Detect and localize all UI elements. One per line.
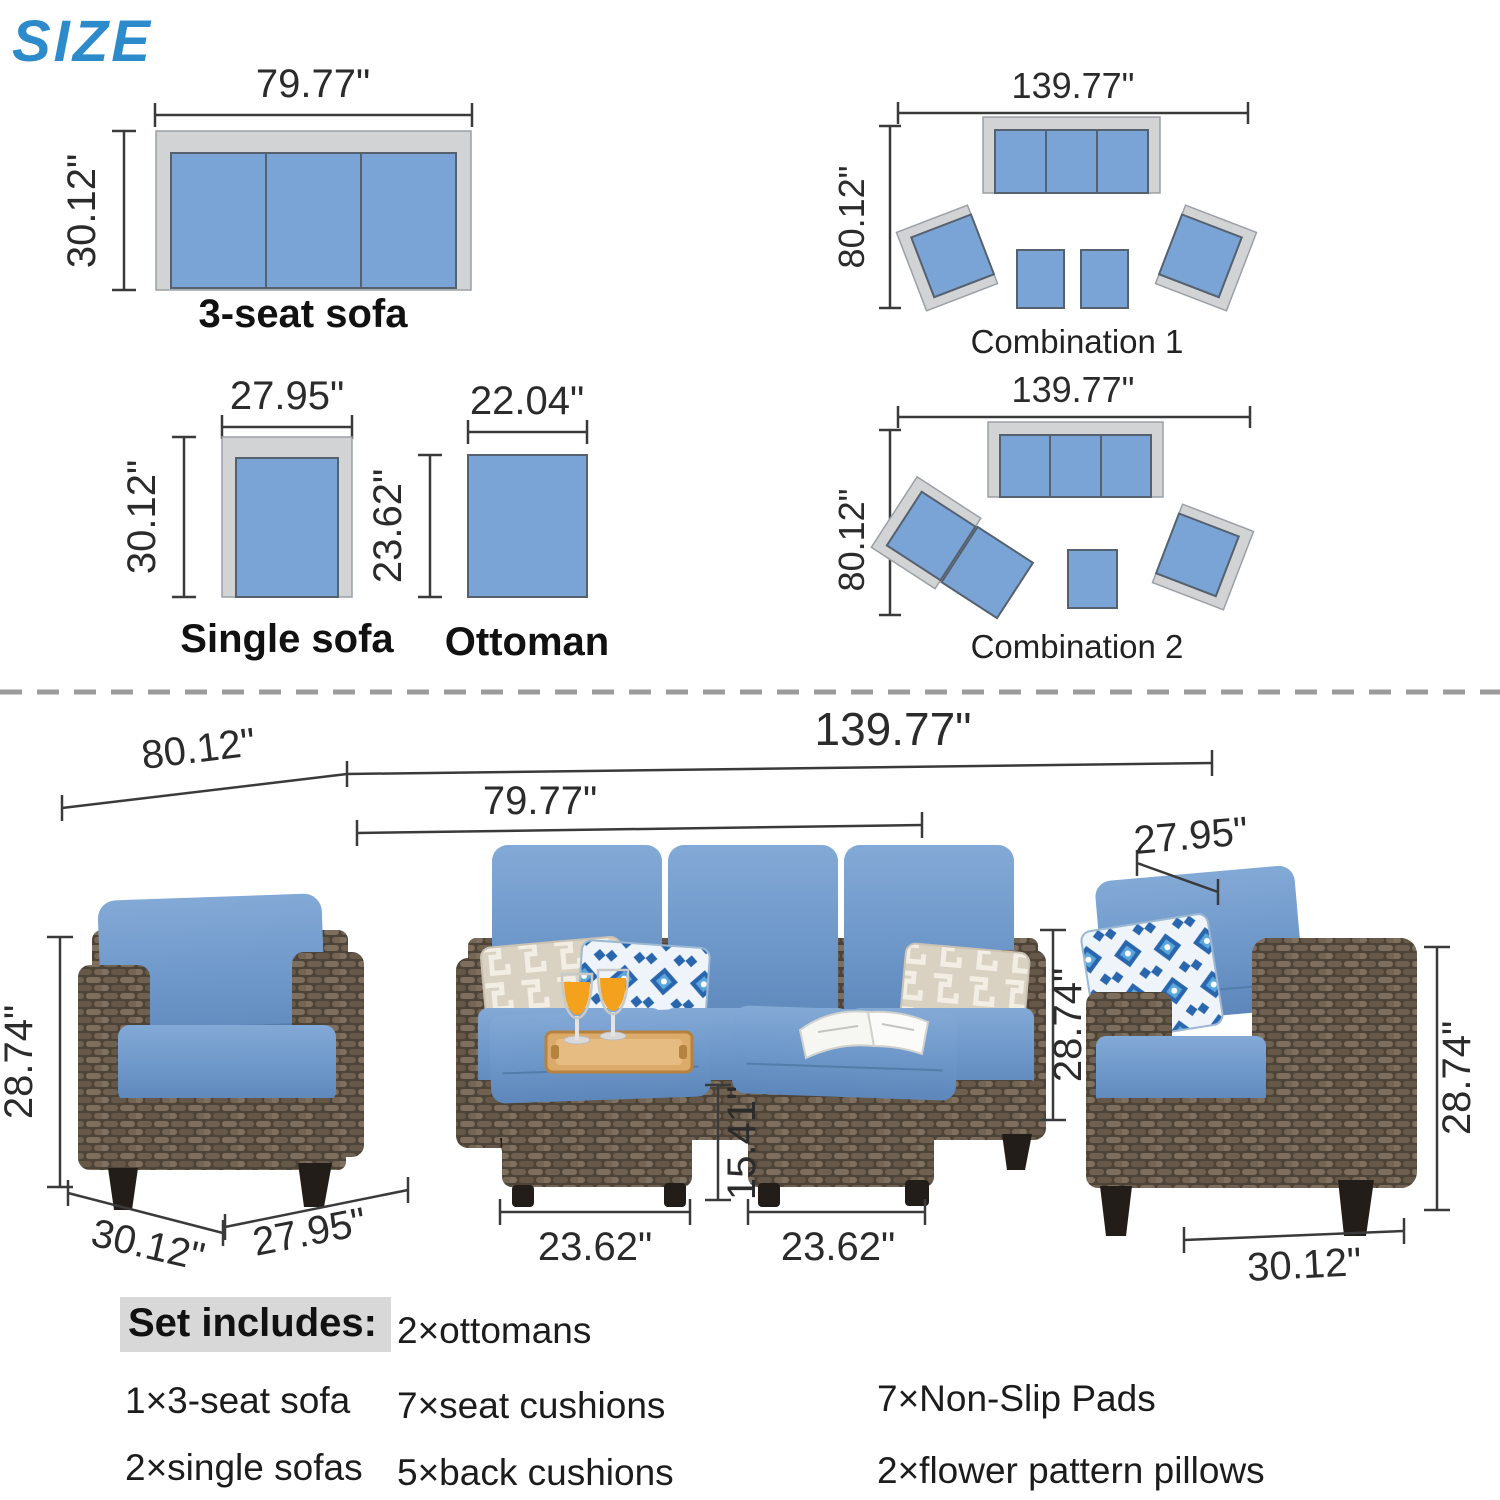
sofa3-height-line <box>112 131 136 290</box>
set-includes-item-flower-pillows: 2×flower pattern pillows <box>877 1450 1265 1492</box>
combo2-width-label: 139.77" <box>1012 369 1135 410</box>
sofa3-height-label: 30.12" <box>60 154 104 268</box>
sofa3-caption: 3-seat sofa <box>199 292 409 336</box>
combo1-height-label: 80.12" <box>831 166 872 269</box>
dim-sofa-width: 79.77" <box>483 779 597 823</box>
ottoman-height-label: 23.62" <box>366 469 410 583</box>
single-height-label: 30.12" <box>120 460 164 574</box>
dim-ottoman1-width: 23.62" <box>538 1225 652 1269</box>
sofa3-cushions <box>171 153 456 288</box>
combo1-width-label: 139.77" <box>1012 65 1135 106</box>
ottoman-height-line <box>418 455 442 597</box>
sofa3-width-label: 79.77" <box>256 62 370 106</box>
set-includes-item-3-seat-sofa: 1×3-seat sofa <box>125 1380 350 1422</box>
ottoman-cushion <box>468 455 587 597</box>
set-includes-item-non-slip-pads: 7×Non-Slip Pads <box>877 1378 1156 1420</box>
single-cushion <box>236 458 338 597</box>
ottoman-caption: Ottoman <box>445 620 609 664</box>
diagram-3-seat-sofa: 79.77" 30.12" 3-seat sofa <box>60 62 472 336</box>
combo2-height-label: 80.12" <box>831 489 872 592</box>
combo2-chaise <box>871 477 1038 626</box>
dim-right-chair-height: 28.74" <box>1435 1021 1479 1135</box>
dim-left-chair-width: 27.95" <box>249 1200 370 1265</box>
dim-ottoman2-width: 23.62" <box>781 1225 895 1269</box>
single-height-line <box>172 437 196 597</box>
furniture-size-infographic: SIZE <box>0 0 1500 1500</box>
single-caption: Single sofa <box>180 617 394 661</box>
set-includes-item-back-cushions: 5×back cushions <box>397 1452 674 1494</box>
photo-right-chair <box>1080 865 1417 1236</box>
dim-ottoman-height: 15.41" <box>720 1086 764 1200</box>
dim-left-chair-depth: 30.12" <box>87 1211 208 1280</box>
photo-right-ottoman <box>732 1005 959 1207</box>
ottoman-width-line <box>468 420 587 444</box>
dim-sofa-height: 28.74" <box>1046 968 1090 1082</box>
diagram-ottoman: 22.04" 23.62" Ottoman <box>366 379 609 664</box>
ottoman-width-label: 22.04" <box>470 379 584 423</box>
combo1-height-line <box>879 126 901 308</box>
single-width-line <box>222 415 352 439</box>
set-includes-item-ottomans: 2×ottomans <box>397 1310 591 1352</box>
sofa3-width-line <box>155 103 472 127</box>
dim-right-chair-depth: 30.12" <box>1246 1240 1362 1290</box>
combo1-caption: Combination 1 <box>971 323 1184 360</box>
photo-left-chair <box>78 893 364 1210</box>
diagram-single-sofa: 27.95" 30.12" Single sofa <box>120 374 394 661</box>
dim-left-span: 80.12" <box>139 720 258 778</box>
set-includes-item-seat-cushions: 7×seat cushions <box>397 1385 665 1427</box>
diagram-combination-2: 139.77" 80.12" Combination 2 <box>831 369 1254 665</box>
dim-left-chair-height: 28.74" <box>0 1005 41 1119</box>
combo2-caption: Combination 2 <box>971 628 1184 665</box>
dim-right-chair-width: 27.95" <box>1132 809 1250 863</box>
infographic-graphics: 79.77" 30.12" 3-seat sofa 27.95" <box>0 0 1500 1500</box>
dim-total-span: 139.77" <box>814 703 971 755</box>
single-width-label: 27.95" <box>230 374 344 418</box>
set-includes-heading: Set includes: <box>120 1297 391 1352</box>
diagram-combination-1: 139.77" 80.12" Combination 1 <box>831 65 1257 360</box>
set-includes-item-single-sofas: 2×single sofas <box>125 1447 363 1489</box>
